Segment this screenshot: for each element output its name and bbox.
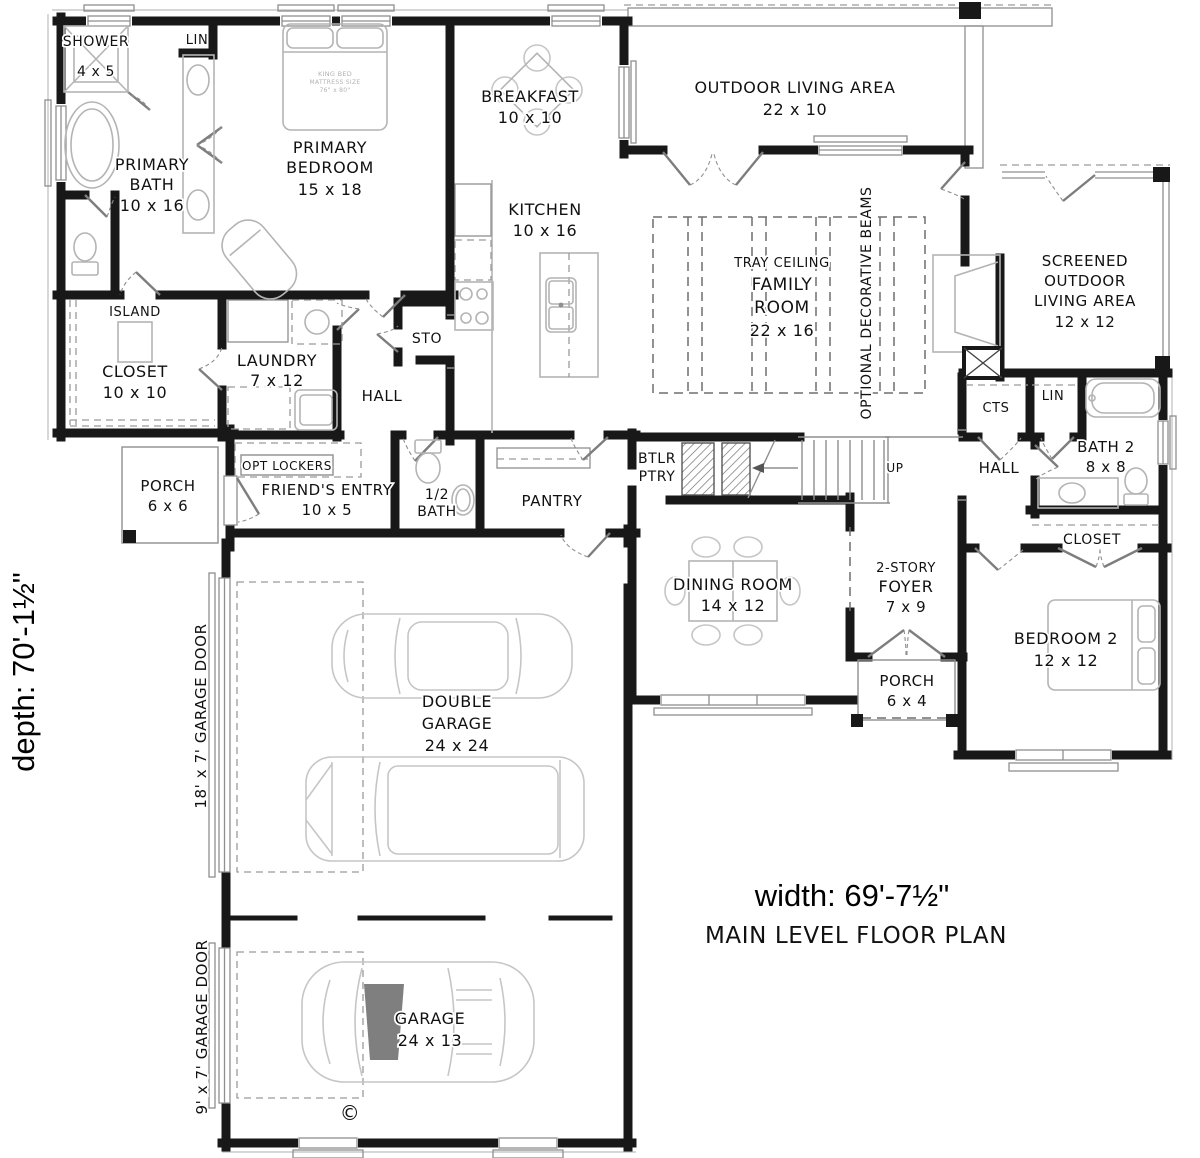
- depth-dimension: depth: 70'-1½": [6, 572, 41, 772]
- stair-direction-arrow: [752, 463, 764, 473]
- plan-title: MAIN LEVEL FLOOR PLAN: [705, 923, 1007, 949]
- door: [975, 548, 1024, 570]
- bathtub-2: [1086, 379, 1160, 417]
- family-room-ceiling-note: TRAY CEILING: [733, 256, 830, 271]
- car-suv: [306, 757, 584, 861]
- dining-room-dims: 14 x 12: [701, 596, 766, 615]
- butlers-pantry-label: BTLR: [638, 451, 676, 467]
- beams-note: OPTIONAL DECORATIVE BEAMS: [859, 186, 875, 419]
- door: [663, 152, 763, 185]
- linen-hall-label: LIN: [1042, 389, 1065, 404]
- window: [618, 61, 636, 143]
- svg-text:LIVING AREA: LIVING AREA: [1034, 292, 1136, 310]
- primary-bedroom-label: PRIMARY: [293, 138, 367, 157]
- hall-right-label: HALL: [979, 459, 1020, 477]
- svg-text:ROOM: ROOM: [754, 298, 810, 318]
- breakfast-label: BREAKFAST: [481, 87, 579, 106]
- linen-bath-label: LIN: [186, 33, 209, 48]
- window: [293, 1137, 363, 1158]
- garage-door-9-label: 9' x 7' GARAGE DOOR: [193, 939, 211, 1114]
- pantry-label: PANTRY: [522, 492, 583, 510]
- king-bed-note: KING BED: [318, 70, 352, 78]
- laundry-dims: 7 x 12: [250, 371, 304, 390]
- garden-tub: [65, 102, 119, 188]
- porch-left-dims: 6 x 6: [148, 497, 189, 515]
- stairs-up-label: UP: [886, 461, 903, 475]
- window: [654, 694, 812, 715]
- dining-room-label: DINING ROOM: [673, 575, 793, 594]
- bedroom2-label: BEDROOM 2: [1014, 629, 1118, 648]
- double-garage-dims: 24 x 24: [425, 736, 490, 755]
- double-garage-label: DOUBLE: [422, 692, 492, 711]
- bedroom2-dims: 12 x 12: [1034, 651, 1099, 670]
- breakfast-dims: 10 x 10: [498, 108, 563, 127]
- svg-text:BEDROOM: BEDROOM: [286, 158, 374, 177]
- range: [455, 180, 493, 433]
- door: [120, 272, 160, 295]
- closet-island: [118, 322, 152, 362]
- door: [561, 533, 610, 557]
- storage-label: STO: [412, 331, 442, 347]
- post: [959, 2, 981, 19]
- fireplace: [933, 255, 1002, 378]
- kitchen-dims: 10 x 16: [513, 221, 578, 240]
- shower-dims: 4 x 5: [77, 64, 115, 80]
- svg-text:BATH: BATH: [130, 175, 175, 194]
- window: [548, 5, 604, 28]
- svg-text:GARAGE: GARAGE: [422, 714, 493, 733]
- shower-label: SHOWER: [63, 34, 129, 50]
- outdoor-living-label: OUTDOOR LIVING AREA: [694, 78, 895, 97]
- svg-text:BATH: BATH: [417, 504, 457, 520]
- garage-dims: 24 x 13: [398, 1031, 463, 1050]
- car-sedan: [332, 614, 572, 698]
- outdoor-living-dims: 22 x 10: [763, 100, 828, 119]
- garage-label: GARAGE: [395, 1009, 466, 1028]
- door: [1058, 548, 1142, 567]
- foyer-label: 2-STORY: [876, 561, 936, 576]
- screened-outdoor-dims: 12 x 12: [1055, 313, 1116, 331]
- window: [84, 5, 134, 28]
- kitchen-island: [540, 253, 598, 377]
- door: [941, 162, 965, 199]
- floor-plan-page: SHOWER 4 x 5 LIN PRIMARY BATH 10 x 16 PR…: [0, 0, 1200, 1158]
- family-room-label: FAMILY: [752, 275, 813, 295]
- door: [868, 630, 945, 657]
- primary-bedroom-dims: 15 x 18: [298, 180, 363, 199]
- toilet: [72, 233, 98, 275]
- door: [128, 92, 150, 110]
- porch-left-label: PORCH: [140, 477, 195, 495]
- floor-plan-svg: SHOWER 4 x 5 LIN PRIMARY BATH 10 x 16 PR…: [0, 0, 1200, 1158]
- staircase: [682, 437, 890, 503]
- window: [493, 1137, 563, 1158]
- closet-primary-dims: 10 x 10: [103, 383, 168, 402]
- door: [978, 437, 1021, 460]
- cts-label: CTS: [982, 401, 1009, 416]
- opt-lockers-label: OPT LOCKERS: [242, 459, 332, 473]
- family-room-dims: 22 x 16: [750, 321, 815, 340]
- half-bath-label: 1/2: [425, 487, 449, 503]
- svg-text:OUTDOOR: OUTDOOR: [1044, 272, 1126, 290]
- door: [199, 347, 222, 390]
- door: [377, 326, 398, 352]
- foyer-dims: 7 x 9: [886, 598, 927, 616]
- door: [224, 476, 259, 525]
- svg-text:PTRY: PTRY: [639, 469, 676, 485]
- svg-text:MATTRESS SIZE: MATTRESS SIZE: [310, 79, 361, 86]
- copyright-mark: ©: [340, 1101, 361, 1125]
- bath2-dims: 8 x 8: [1086, 458, 1127, 476]
- garage-door-opening-9ft: [209, 943, 234, 1108]
- primary-bath-dims: 10 x 16: [120, 196, 185, 215]
- kitchen-label: KITCHEN: [508, 200, 582, 219]
- window: [1009, 749, 1118, 771]
- svg-text:FOYER: FOYER: [879, 577, 934, 596]
- porch-right-label: PORCH: [879, 672, 934, 690]
- width-dimension: width: 69'-7½": [754, 878, 949, 913]
- porch-right-dims: 6 x 4: [887, 692, 928, 710]
- closet-bedroom2-label: CLOSET: [1063, 532, 1121, 548]
- window: [814, 136, 907, 157]
- screened-outdoor-label: SCREENED: [1042, 252, 1128, 270]
- garage-door-opening-18ft: [209, 573, 234, 877]
- window: [1157, 416, 1176, 469]
- door: [197, 127, 222, 163]
- island-label: ISLAND: [109, 305, 161, 320]
- door: [337, 303, 359, 330]
- closet-primary-label: CLOSET: [102, 362, 168, 381]
- friends-entry-dims: 10 x 5: [302, 501, 353, 519]
- porch-left-outline: [122, 447, 218, 543]
- bath2-label: BATH 2: [1077, 438, 1135, 456]
- laundry-label: LAUNDRY: [237, 351, 317, 370]
- friends-entry-label: FRIEND'S ENTRY: [261, 481, 392, 499]
- primary-bath-label: PRIMARY: [115, 155, 189, 174]
- door: [1046, 175, 1095, 201]
- hall-left-label: HALL: [362, 387, 403, 405]
- svg-text:76" x 80": 76" x 80": [320, 87, 351, 94]
- garage-door-18-label: 18' x 7' GARAGE DOOR: [192, 623, 210, 808]
